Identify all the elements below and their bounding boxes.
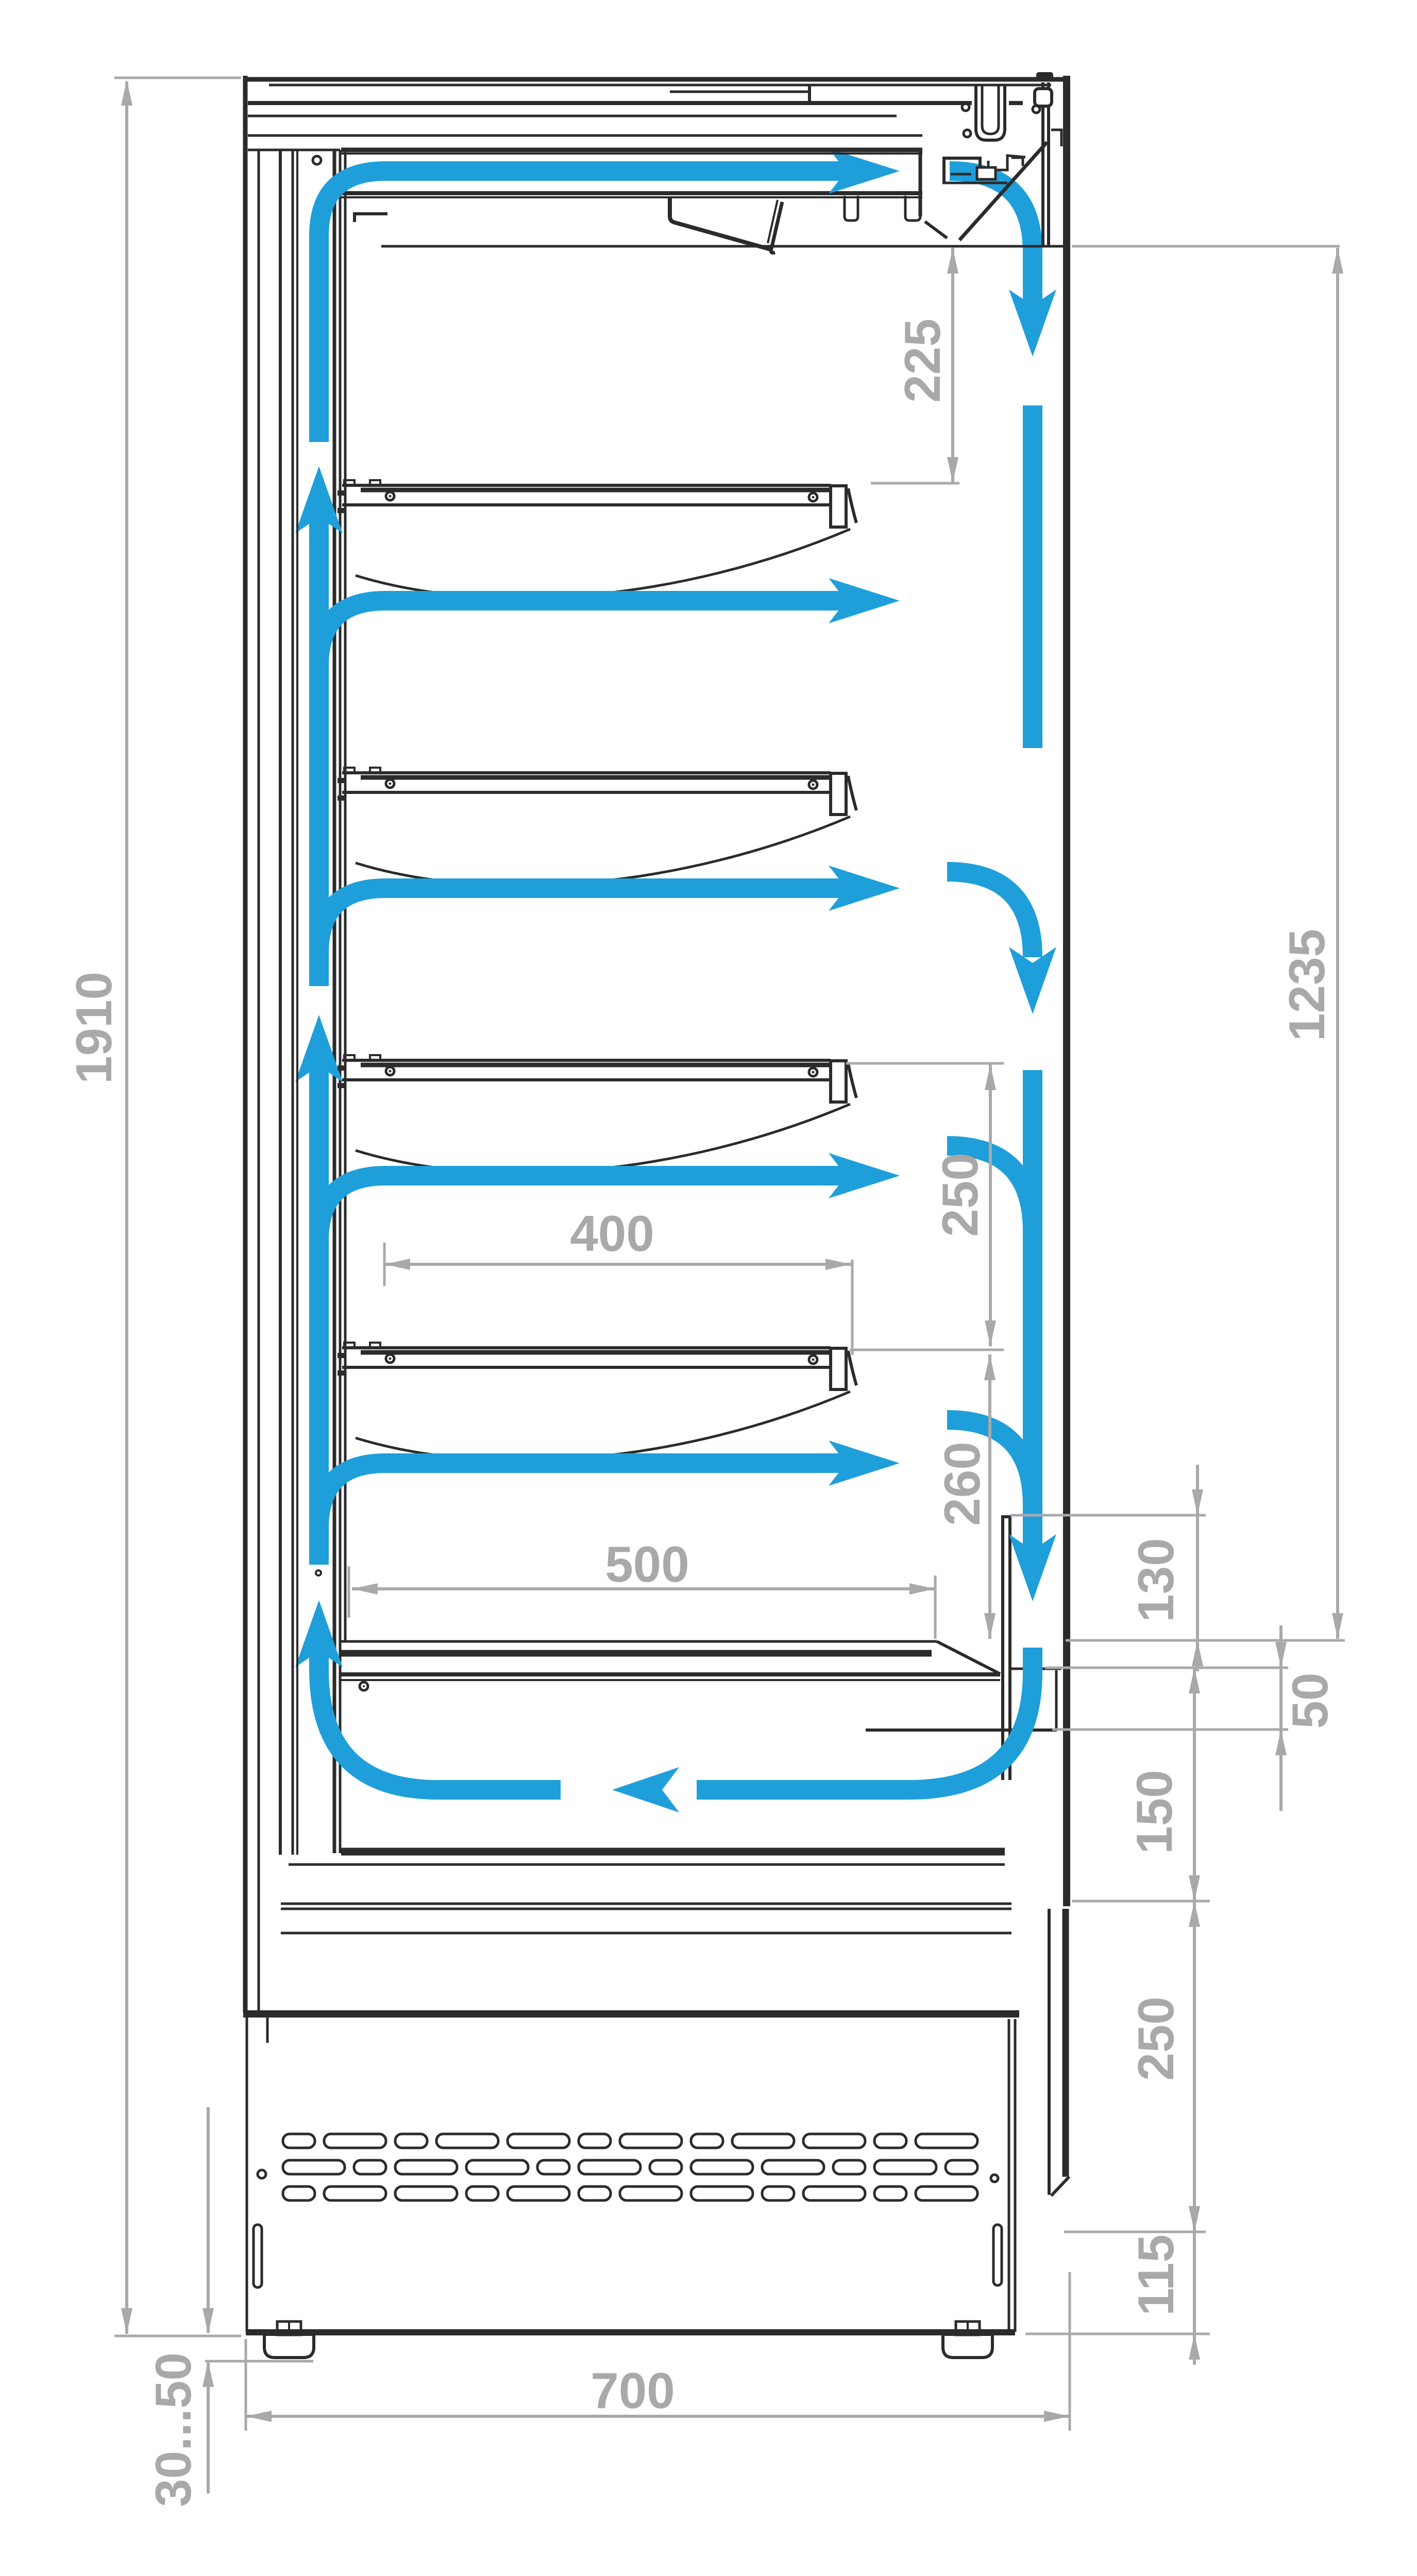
- svg-text:250: 250: [1127, 1996, 1184, 2081]
- svg-text:500: 500: [605, 1536, 689, 1592]
- svg-text:115: 115: [1127, 2234, 1184, 2316]
- svg-text:150: 150: [1126, 1770, 1183, 1854]
- svg-text:250: 250: [932, 1153, 988, 1237]
- svg-text:50: 50: [1281, 1672, 1338, 1728]
- svg-text:1235: 1235: [1278, 929, 1335, 1041]
- svg-text:260: 260: [934, 1442, 990, 1526]
- svg-text:700: 700: [591, 2362, 675, 2419]
- svg-text:225: 225: [894, 318, 951, 403]
- svg-text:30...50: 30...50: [145, 2352, 201, 2507]
- svg-text:400: 400: [570, 1205, 654, 1262]
- svg-text:130: 130: [1127, 1538, 1184, 1622]
- svg-text:1910: 1910: [65, 972, 122, 1084]
